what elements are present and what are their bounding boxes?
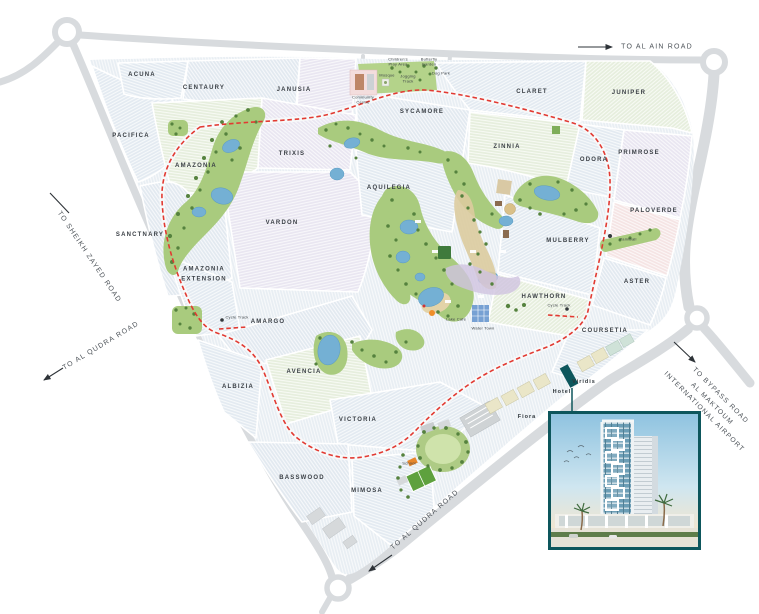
road-stub-bottom xyxy=(322,598,330,612)
roundabout-right xyxy=(687,308,707,328)
cluster-label-avencia: AVENCIA xyxy=(287,369,322,375)
place-label-viridis: Viridis xyxy=(572,379,596,385)
cluster-label-mimosa: MIMOSA xyxy=(351,488,383,494)
amenity-label-dog-park: Dog Park xyxy=(432,72,450,77)
cluster-label-amazonia: AMAZONIA xyxy=(175,163,217,169)
pond xyxy=(499,216,513,226)
cluster-label-claret: CLARET xyxy=(516,89,548,95)
park-zinnia-square xyxy=(552,126,560,134)
cluster-label-janusia: JANUSIA xyxy=(277,87,312,93)
cluster-label-paloverde: PALOVERDE xyxy=(630,208,678,214)
roundabout-top-right xyxy=(703,51,725,73)
cluster-vardon xyxy=(228,172,378,292)
road-label-al-ain: TO AL AIN ROAD xyxy=(621,44,693,51)
road-bypass-exit xyxy=(704,328,750,383)
roundabout-bottom-left xyxy=(327,577,349,599)
amenity-label-lake-cafe: Lake Cafe xyxy=(446,318,466,323)
cluster-acuna xyxy=(118,61,188,99)
cluster-label-pacifica: PACIFICA xyxy=(112,133,150,139)
amenity-label-paintball: Paintball xyxy=(619,238,636,243)
cluster-juniper xyxy=(582,61,692,133)
cluster-label-victoria: VICTORIA xyxy=(339,417,377,423)
pond xyxy=(415,273,425,281)
cluster-label-trixis: TRIXIS xyxy=(279,151,306,157)
cluster-label-sycamore: SYCAMORE xyxy=(400,109,444,115)
sand-lot xyxy=(496,179,512,195)
cluster-label-vardon: VARDON xyxy=(266,220,299,226)
cluster-label-amazonia-extension: AMAZONIA EXTENSION xyxy=(181,265,226,284)
cluster-label-coursetia: COURSETIA xyxy=(582,328,628,334)
amenity-label-mosque: Mosque xyxy=(379,74,394,79)
roundabout-top-left xyxy=(55,20,79,44)
amphitheatre xyxy=(505,204,516,215)
park-pacifica-small xyxy=(168,120,188,136)
cluster-label-hawthorn: HAWTHORN xyxy=(522,294,567,300)
amenity-label-water-town: Water Town xyxy=(472,327,495,332)
cluster-label-amargo: AMARGO xyxy=(251,319,286,325)
car xyxy=(609,535,617,539)
cluster-label-juniper: JUNIPER xyxy=(612,90,646,96)
hedge-maze xyxy=(438,246,451,259)
hotel-render-photo xyxy=(548,411,701,550)
amenity-label-community-centre: Community Centre xyxy=(350,95,376,104)
orange-amenity-dot xyxy=(429,310,435,316)
cluster-label-odora: ODORA xyxy=(580,157,608,163)
pond xyxy=(192,207,206,217)
amenity-label-cycle-track-amargo: Cycle Track xyxy=(225,316,248,321)
cluster-label-acuna: ACUNA xyxy=(128,72,156,78)
cluster-label-centaury: CENTAURY xyxy=(183,85,225,91)
amenity-label-childrens-play-area: Children's Play Area xyxy=(385,57,411,66)
place-label-hotel: Hotel xyxy=(553,389,572,395)
cluster-label-primrose: PRIMROSE xyxy=(618,150,660,156)
amenity-label-jogging-track: Jogging Track xyxy=(395,74,421,83)
podium xyxy=(555,514,694,530)
cluster-label-mulberry: MULBERRY xyxy=(546,238,589,244)
paintball-figure-icon xyxy=(608,234,612,238)
water-town-square xyxy=(472,305,489,322)
place-label-school: School xyxy=(402,462,415,467)
community-master-plan-map: ACUNA CENTAURY JANUSIA PACIFICA AMAZONIA… xyxy=(0,0,759,614)
cluster-label-aquilegia: AQUILEGIA xyxy=(367,185,411,191)
hotel-render-graphic xyxy=(551,414,698,547)
cyclist-icon xyxy=(220,318,224,322)
car xyxy=(569,534,578,538)
amenity-label-cycle-track-hawthorn: Cycle Track xyxy=(547,304,570,309)
cluster-label-zinnia: ZINNIA xyxy=(493,144,520,150)
arrow-al-qudra-west xyxy=(44,368,63,380)
road-top xyxy=(0,40,60,82)
pond xyxy=(396,251,410,263)
pond xyxy=(330,168,344,180)
cluster-label-aster: ASTER xyxy=(624,279,650,285)
cluster-label-sanctnary: SANCTNARY xyxy=(116,232,164,238)
cluster-label-albizia: ALBIZIA xyxy=(222,384,254,390)
place-label-fiora: Fiora xyxy=(518,414,536,420)
cluster-label-basswood: BASSWOOD xyxy=(279,475,325,481)
amenity-label-butterfly-garden: Butterfly Garden xyxy=(416,57,442,66)
